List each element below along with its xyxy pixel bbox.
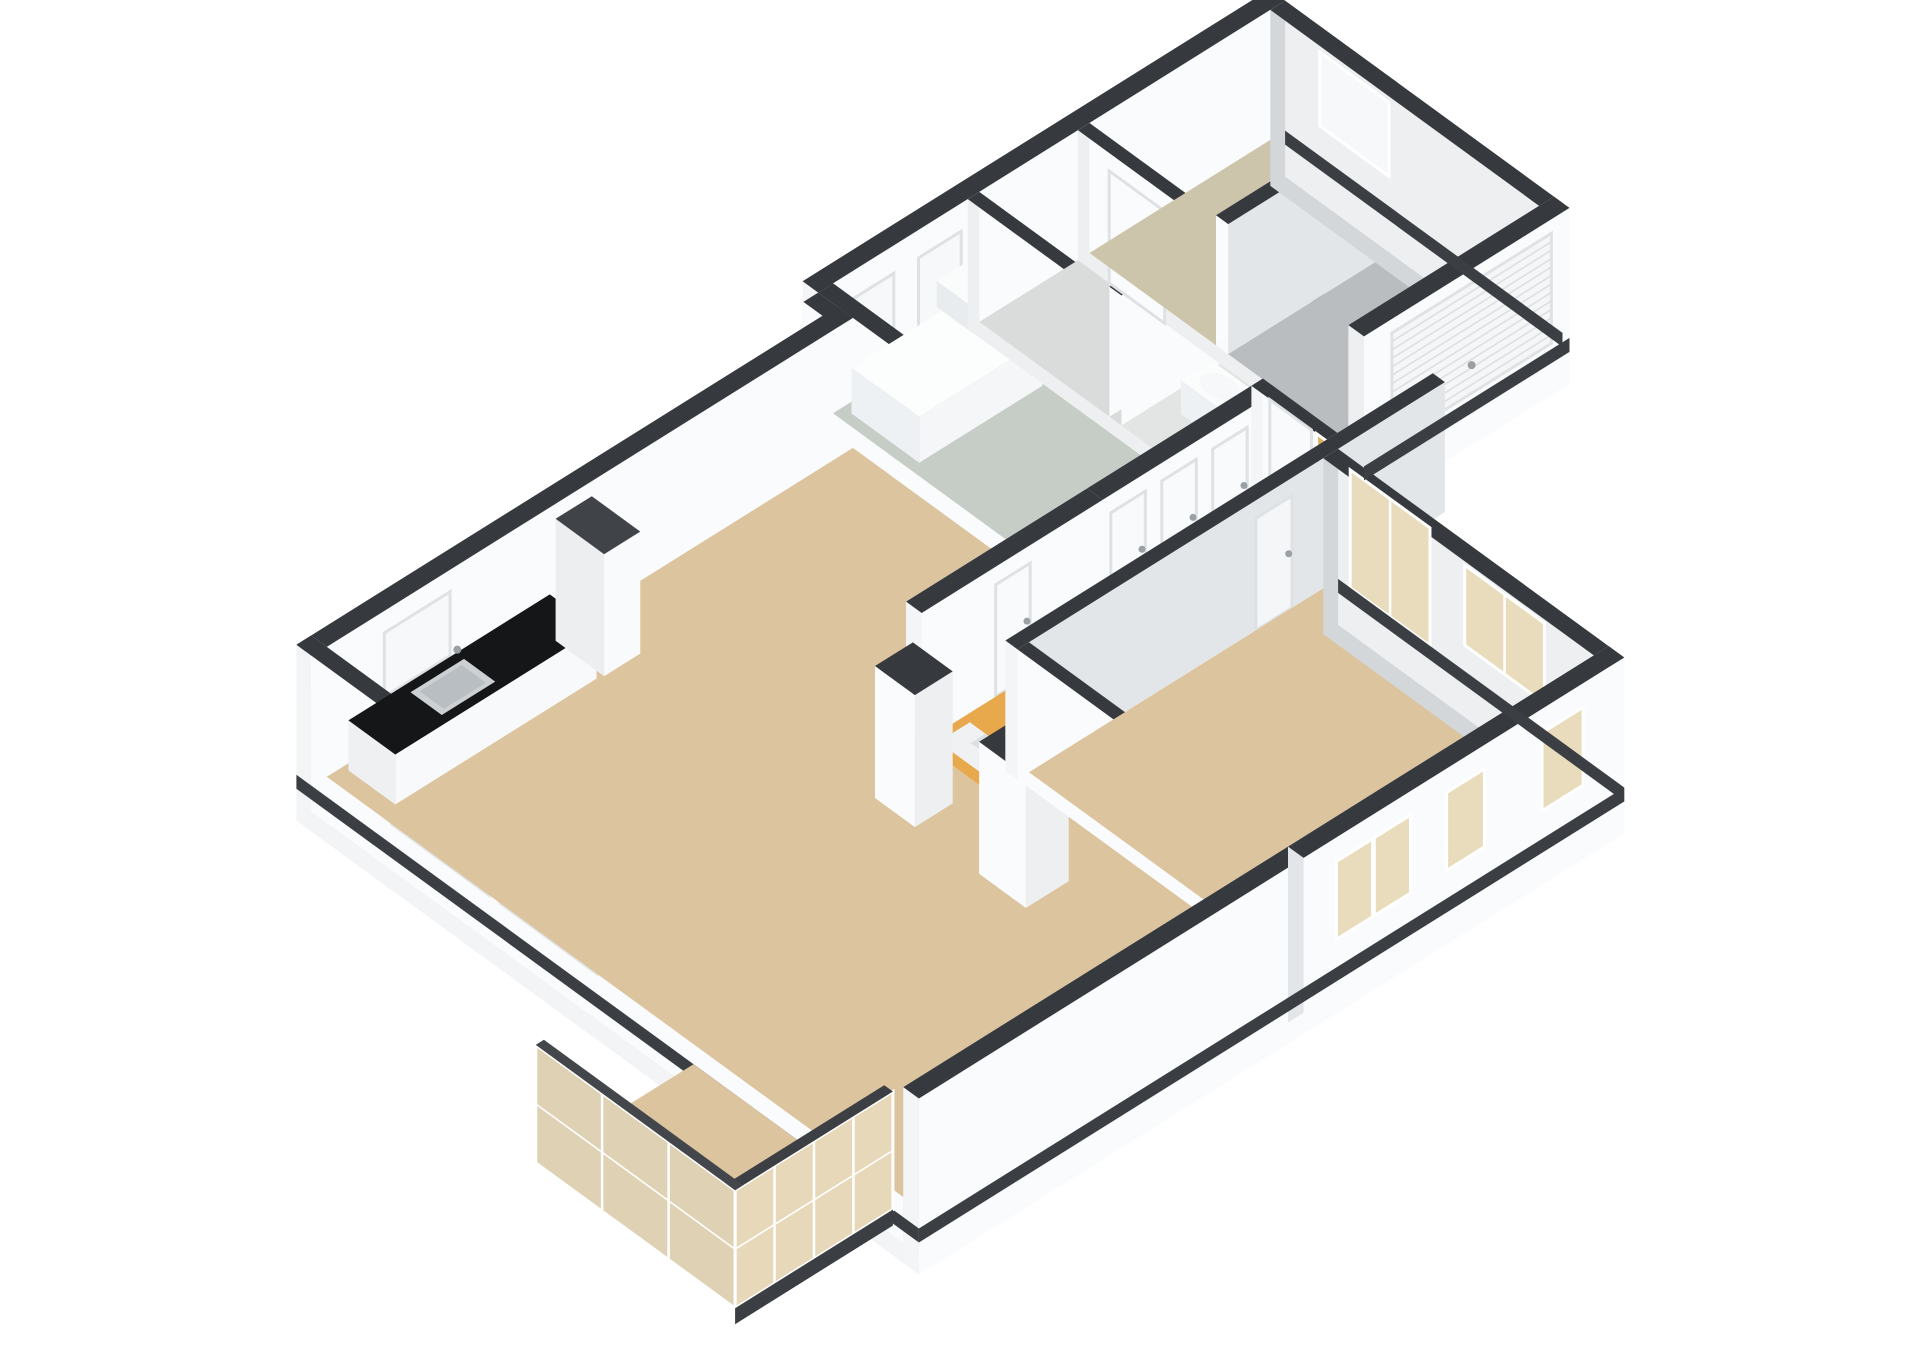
hall-door-toilet-handle	[1240, 482, 1247, 489]
kitchen-faucet	[453, 646, 461, 654]
hall-door-landing-handle	[1189, 514, 1196, 521]
bedroom-door	[1256, 496, 1292, 631]
hall-door-living-handle	[1023, 618, 1030, 625]
bedroom-door-handle	[1285, 550, 1292, 557]
floorplan-3d-view	[0, 0, 1920, 1357]
kitchen-tall-cabinet	[556, 496, 641, 676]
floorplan-svg	[0, 0, 1920, 1357]
garage-door-handle	[1468, 361, 1476, 369]
hall-door-bathroom-handle	[1139, 546, 1146, 553]
chimney-column-1	[875, 642, 953, 827]
